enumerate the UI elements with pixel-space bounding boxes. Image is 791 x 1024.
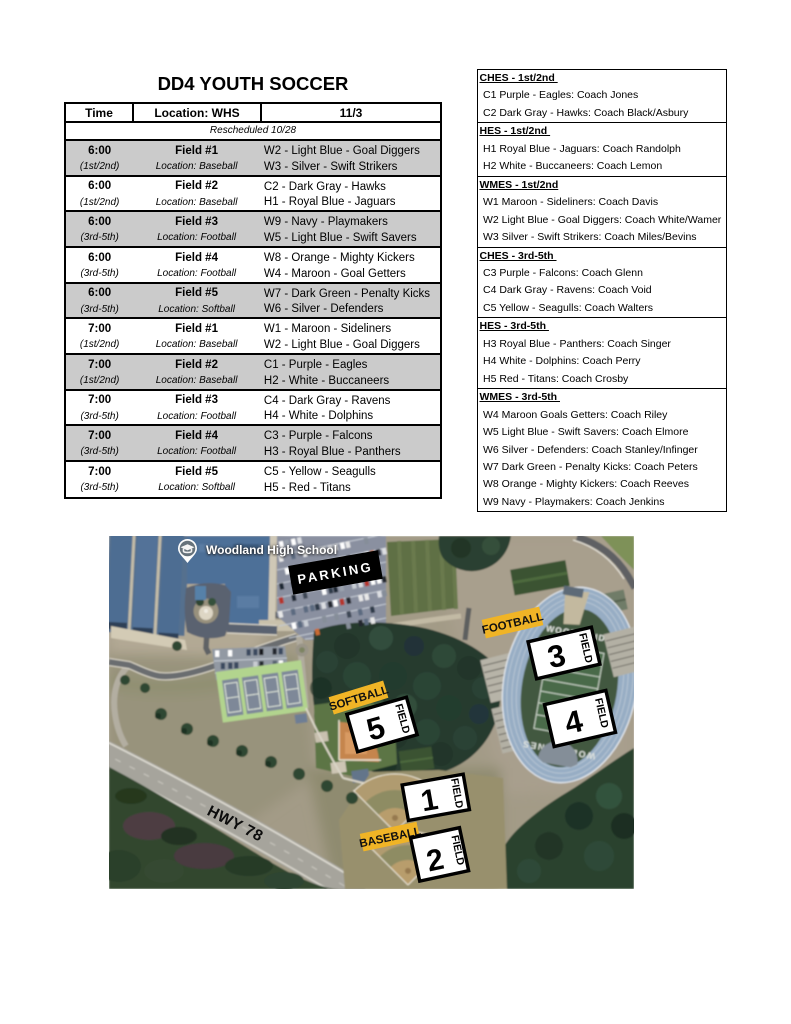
svg-text:Woodland High School: Woodland High School xyxy=(206,543,337,557)
